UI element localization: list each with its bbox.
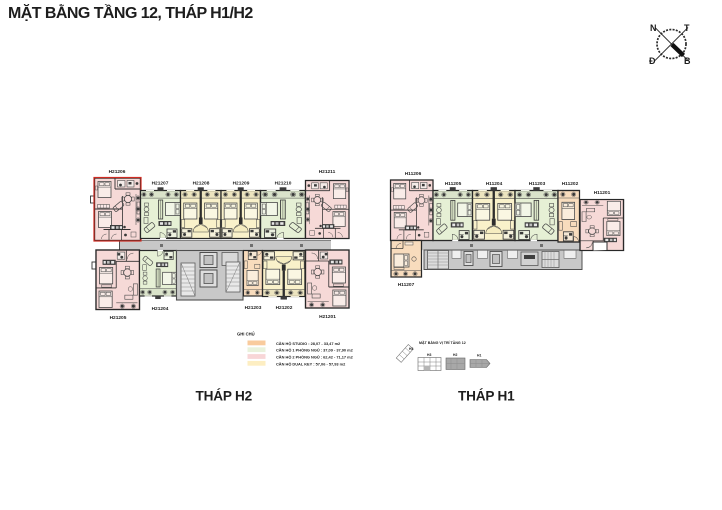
svg-text:H21208: H21208 bbox=[193, 181, 210, 187]
svg-text:H3: H3 bbox=[427, 353, 431, 357]
svg-text:H11202: H11202 bbox=[562, 181, 579, 187]
svg-text:THÁP H2: THÁP H2 bbox=[196, 389, 253, 404]
svg-text:H21211: H21211 bbox=[319, 169, 336, 175]
svg-text:H11204: H11204 bbox=[486, 181, 503, 187]
svg-text:H21202: H21202 bbox=[276, 305, 293, 311]
svg-text:H11201: H11201 bbox=[594, 190, 611, 196]
svg-text:H21204: H21204 bbox=[152, 306, 169, 312]
svg-text:GHI CHÚ: GHI CHÚ bbox=[237, 332, 255, 337]
svg-text:N: N bbox=[650, 23, 657, 33]
svg-text:H11207: H11207 bbox=[398, 282, 415, 288]
svg-text:T: T bbox=[684, 23, 690, 33]
svg-text:H2: H2 bbox=[453, 353, 457, 357]
svg-text:H21210: H21210 bbox=[275, 181, 292, 187]
svg-text:H21201: H21201 bbox=[319, 314, 336, 320]
svg-text:H11206: H11206 bbox=[405, 171, 422, 177]
svg-text:CĂN HỘ 2 PHÒNG NGỦ : 62,42 - 7: CĂN HỘ 2 PHÒNG NGỦ : 62,42 - 71,17 m2 bbox=[276, 355, 354, 360]
svg-text:CĂN HỘ DUAL KEY : 57,06 - 57,9: CĂN HỘ DUAL KEY : 57,06 - 57,93 m2 bbox=[276, 361, 346, 366]
svg-text:H4: H4 bbox=[409, 347, 413, 351]
svg-text:H1: H1 bbox=[477, 354, 481, 358]
svg-text:THÁP H1: THÁP H1 bbox=[458, 389, 515, 404]
svg-text:H11203: H11203 bbox=[529, 181, 546, 187]
svg-text:B: B bbox=[684, 56, 691, 66]
svg-text:H11205: H11205 bbox=[445, 181, 462, 187]
svg-text:MẶT BẰNG TẦNG 12, THÁP H1/H2: MẶT BẰNG TẦNG 12, THÁP H1/H2 bbox=[8, 3, 253, 22]
svg-text:Đ: Đ bbox=[649, 56, 656, 66]
svg-text:H21203: H21203 bbox=[245, 305, 262, 311]
svg-text:MẶT BẰNG VỊ TRÍ TẦNG 12: MẶT BẰNG VỊ TRÍ TẦNG 12 bbox=[419, 340, 466, 345]
svg-text:CĂN HỘ 1 PHÒNG NGỦ : 37,09 - 3: CĂN HỘ 1 PHÒNG NGỦ : 37,09 - 37,90 m2 bbox=[276, 348, 354, 353]
svg-text:H21209: H21209 bbox=[233, 181, 250, 187]
svg-text:H21206: H21206 bbox=[109, 169, 126, 175]
svg-text:H21205: H21205 bbox=[110, 315, 127, 321]
svg-text:CĂN HỘ STUDIO : 28,07 - 33,47: CĂN HỘ STUDIO : 28,07 - 33,47 m2 bbox=[276, 341, 341, 346]
svg-text:H21207: H21207 bbox=[152, 181, 169, 187]
